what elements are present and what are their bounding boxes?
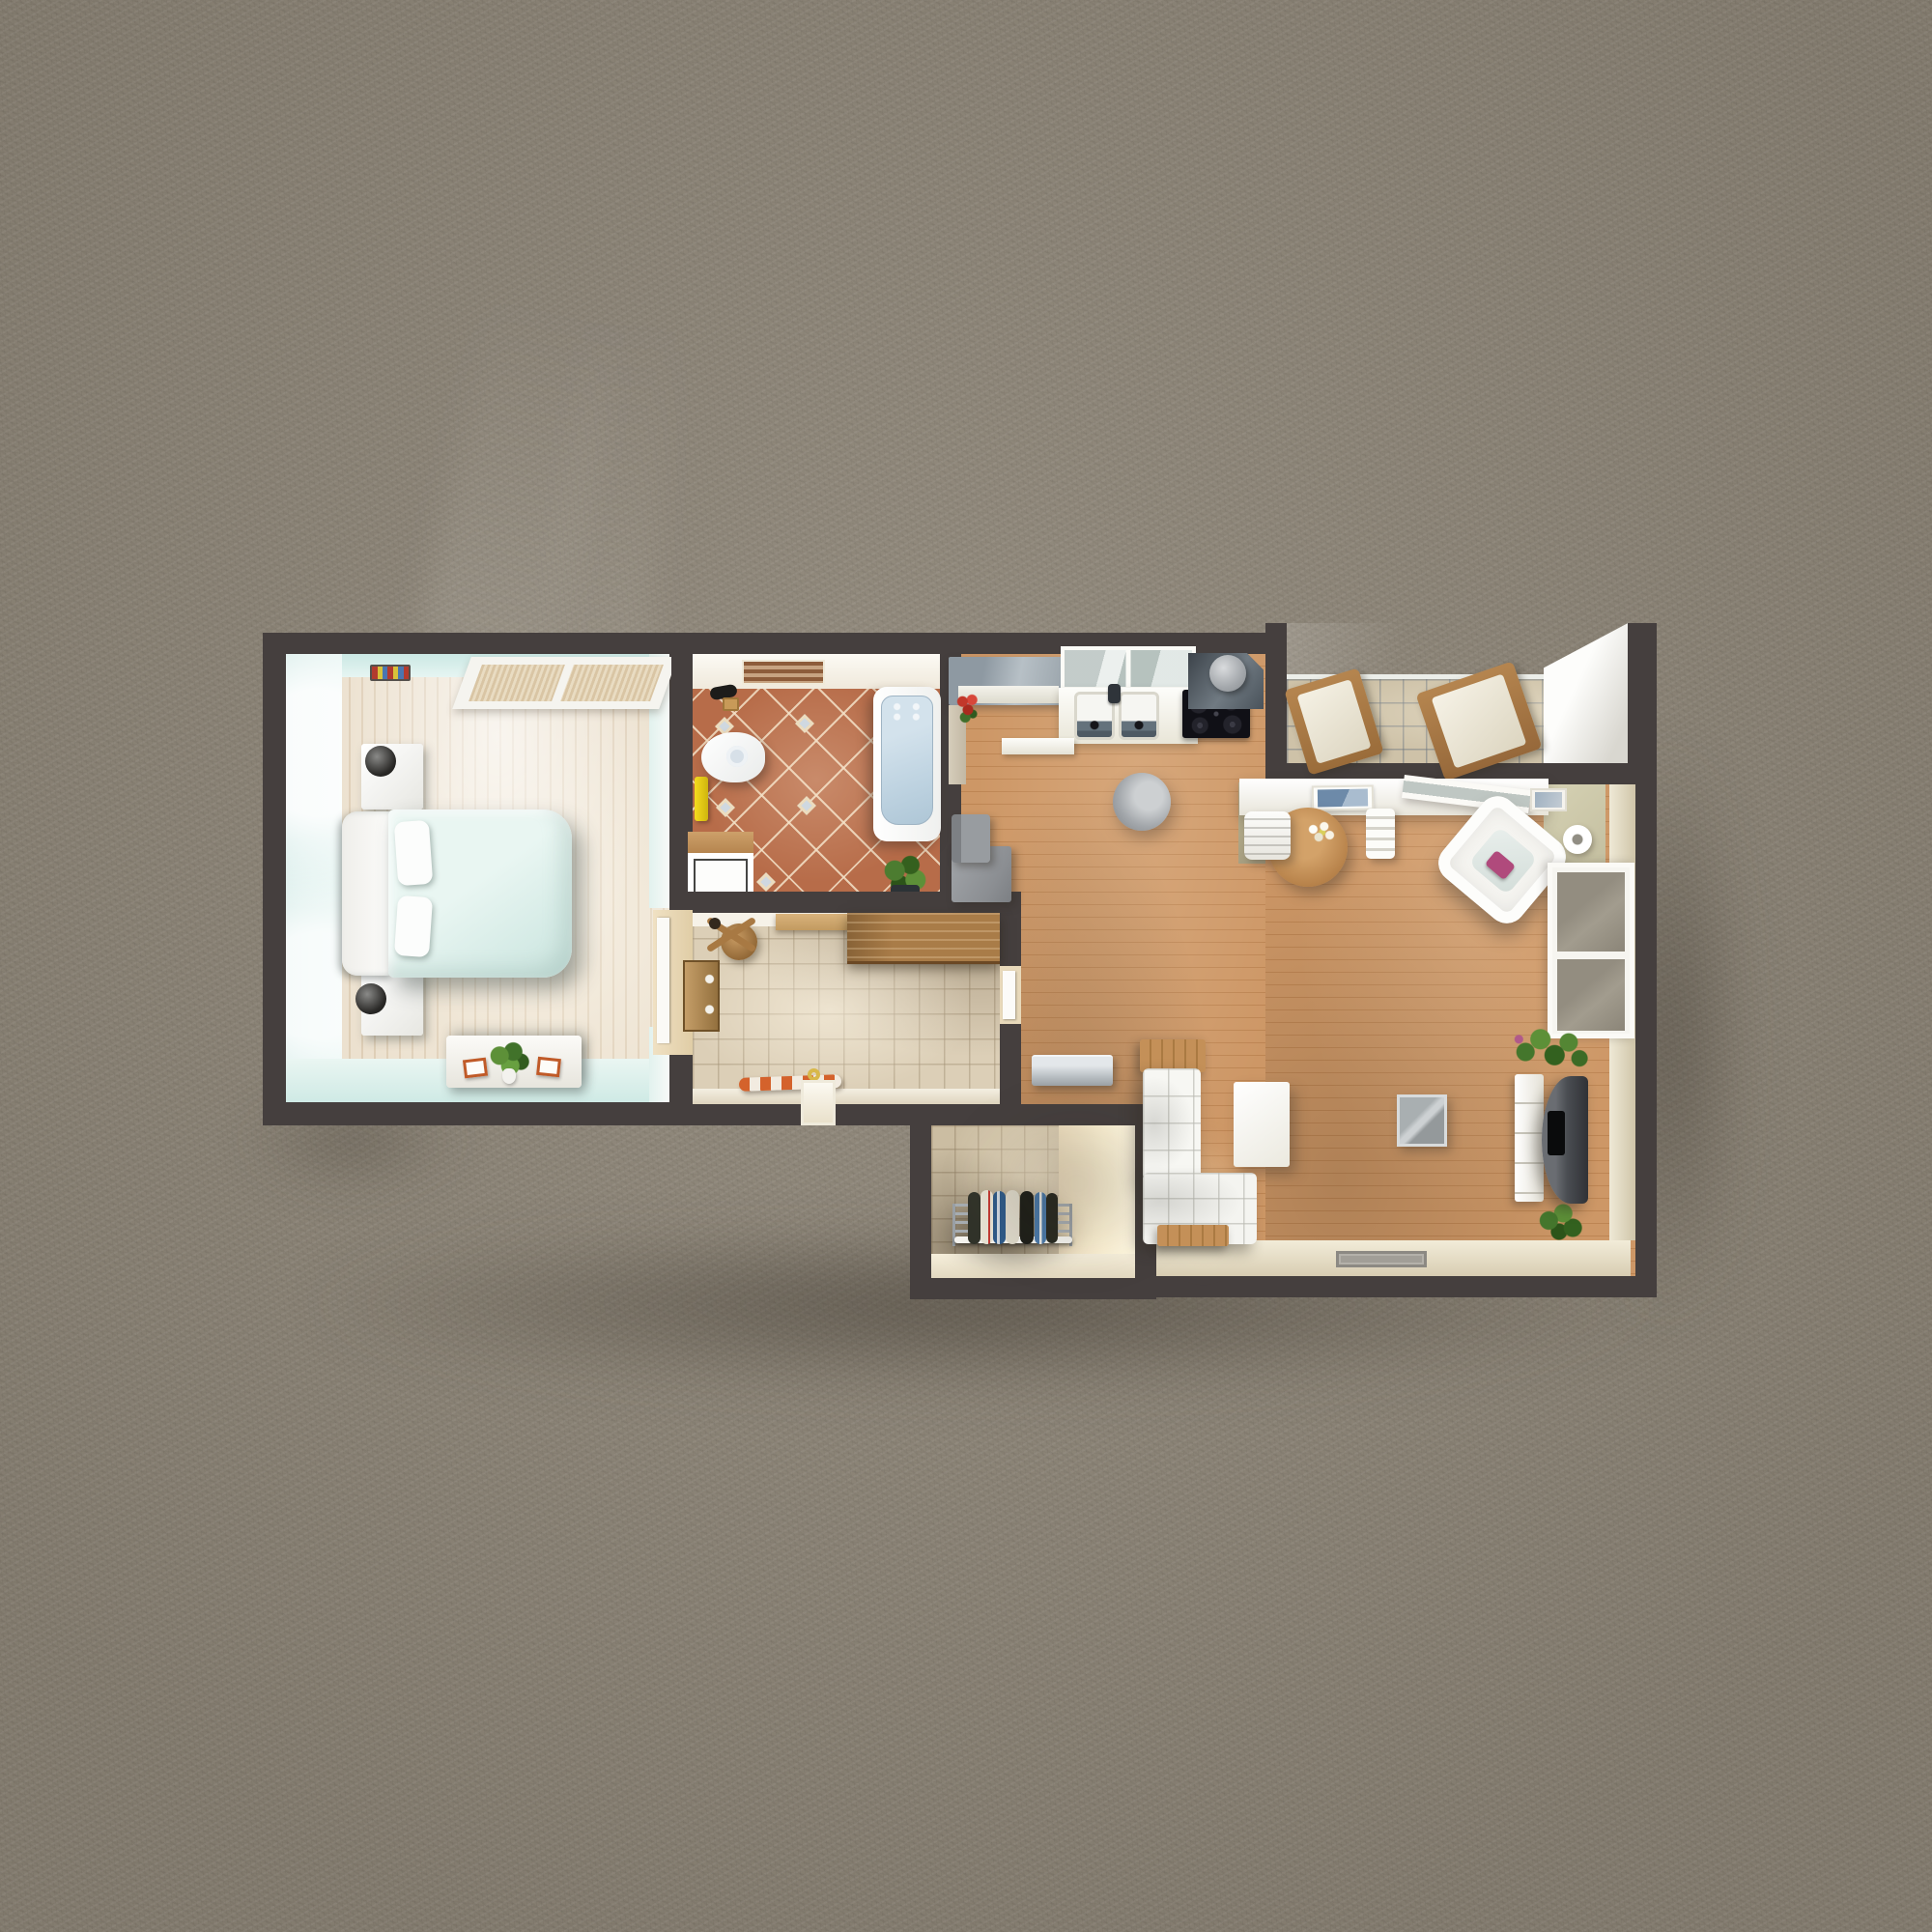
bedroom-door-leaf	[657, 918, 669, 1043]
bed-pillow-2	[394, 895, 433, 957]
ceiling-lamp-icon	[1113, 773, 1171, 831]
bed-headboard	[342, 811, 394, 976]
hallway-south-baseboard	[693, 1089, 1000, 1104]
entry-door-opening	[801, 1080, 836, 1125]
bedroom-wall-west-face	[286, 654, 342, 1102]
wall-ring-icon	[1563, 825, 1592, 854]
dining-chair-right	[1366, 809, 1395, 859]
kitchen-flowers-icon	[954, 692, 981, 724]
hall-wood-shelf	[776, 914, 849, 930]
bath-mat	[742, 660, 825, 685]
balcony-wall-left	[1265, 623, 1287, 763]
kitchen-white-ledge	[1002, 738, 1074, 754]
towel-yellow	[695, 777, 708, 821]
bench-vase	[502, 1068, 516, 1084]
hall-living-door-leaf	[1003, 971, 1015, 1019]
doormat	[1336, 1251, 1427, 1267]
sofa-armrest-wood-bottom	[1157, 1225, 1229, 1246]
sideboard-picture-2-art	[1535, 792, 1562, 808]
bath-cabinet-top	[688, 832, 753, 853]
sideboard-picture-art	[1318, 789, 1368, 808]
tv-screen	[1548, 1111, 1565, 1155]
coffee-table	[1234, 1082, 1290, 1167]
kitchen-window	[1061, 646, 1196, 691]
picture-frame-2-icon	[536, 1057, 561, 1077]
table-lamp-top	[365, 746, 396, 777]
dining-chair-left	[1244, 811, 1291, 860]
kitchen-sink-right	[1119, 692, 1159, 740]
sofa-armrest-wood-top	[1140, 1039, 1206, 1072]
bedroom-ceiling-light-icon	[370, 665, 411, 681]
bathtub-basin	[881, 696, 933, 825]
living-plant-2-icon	[1532, 1199, 1592, 1247]
table-lamp-bottom	[355, 983, 386, 1014]
kitchen-stool	[952, 814, 990, 863]
bed-pillow	[394, 820, 434, 886]
dining-flowers-icon	[1302, 819, 1339, 848]
coat-stand-knob	[709, 918, 721, 929]
tv-stand	[1515, 1074, 1544, 1202]
living-window-pane-top	[1557, 872, 1625, 952]
hood-chimney-icon	[1209, 655, 1246, 692]
hall-wardrobe	[847, 913, 1000, 964]
floorplan-scene	[0, 0, 1932, 1932]
sofa-section-vertical	[1143, 1068, 1201, 1180]
kitchen-faucet-icon	[1108, 684, 1121, 703]
bath-basket	[723, 697, 739, 711]
coat-rack	[683, 960, 720, 1032]
balcony-wall-right	[1628, 623, 1657, 784]
picture-frame-icon	[463, 1058, 488, 1079]
silver-bench	[1032, 1055, 1113, 1086]
toilet-seat	[726, 746, 748, 767]
glass-side-table	[1397, 1094, 1447, 1147]
